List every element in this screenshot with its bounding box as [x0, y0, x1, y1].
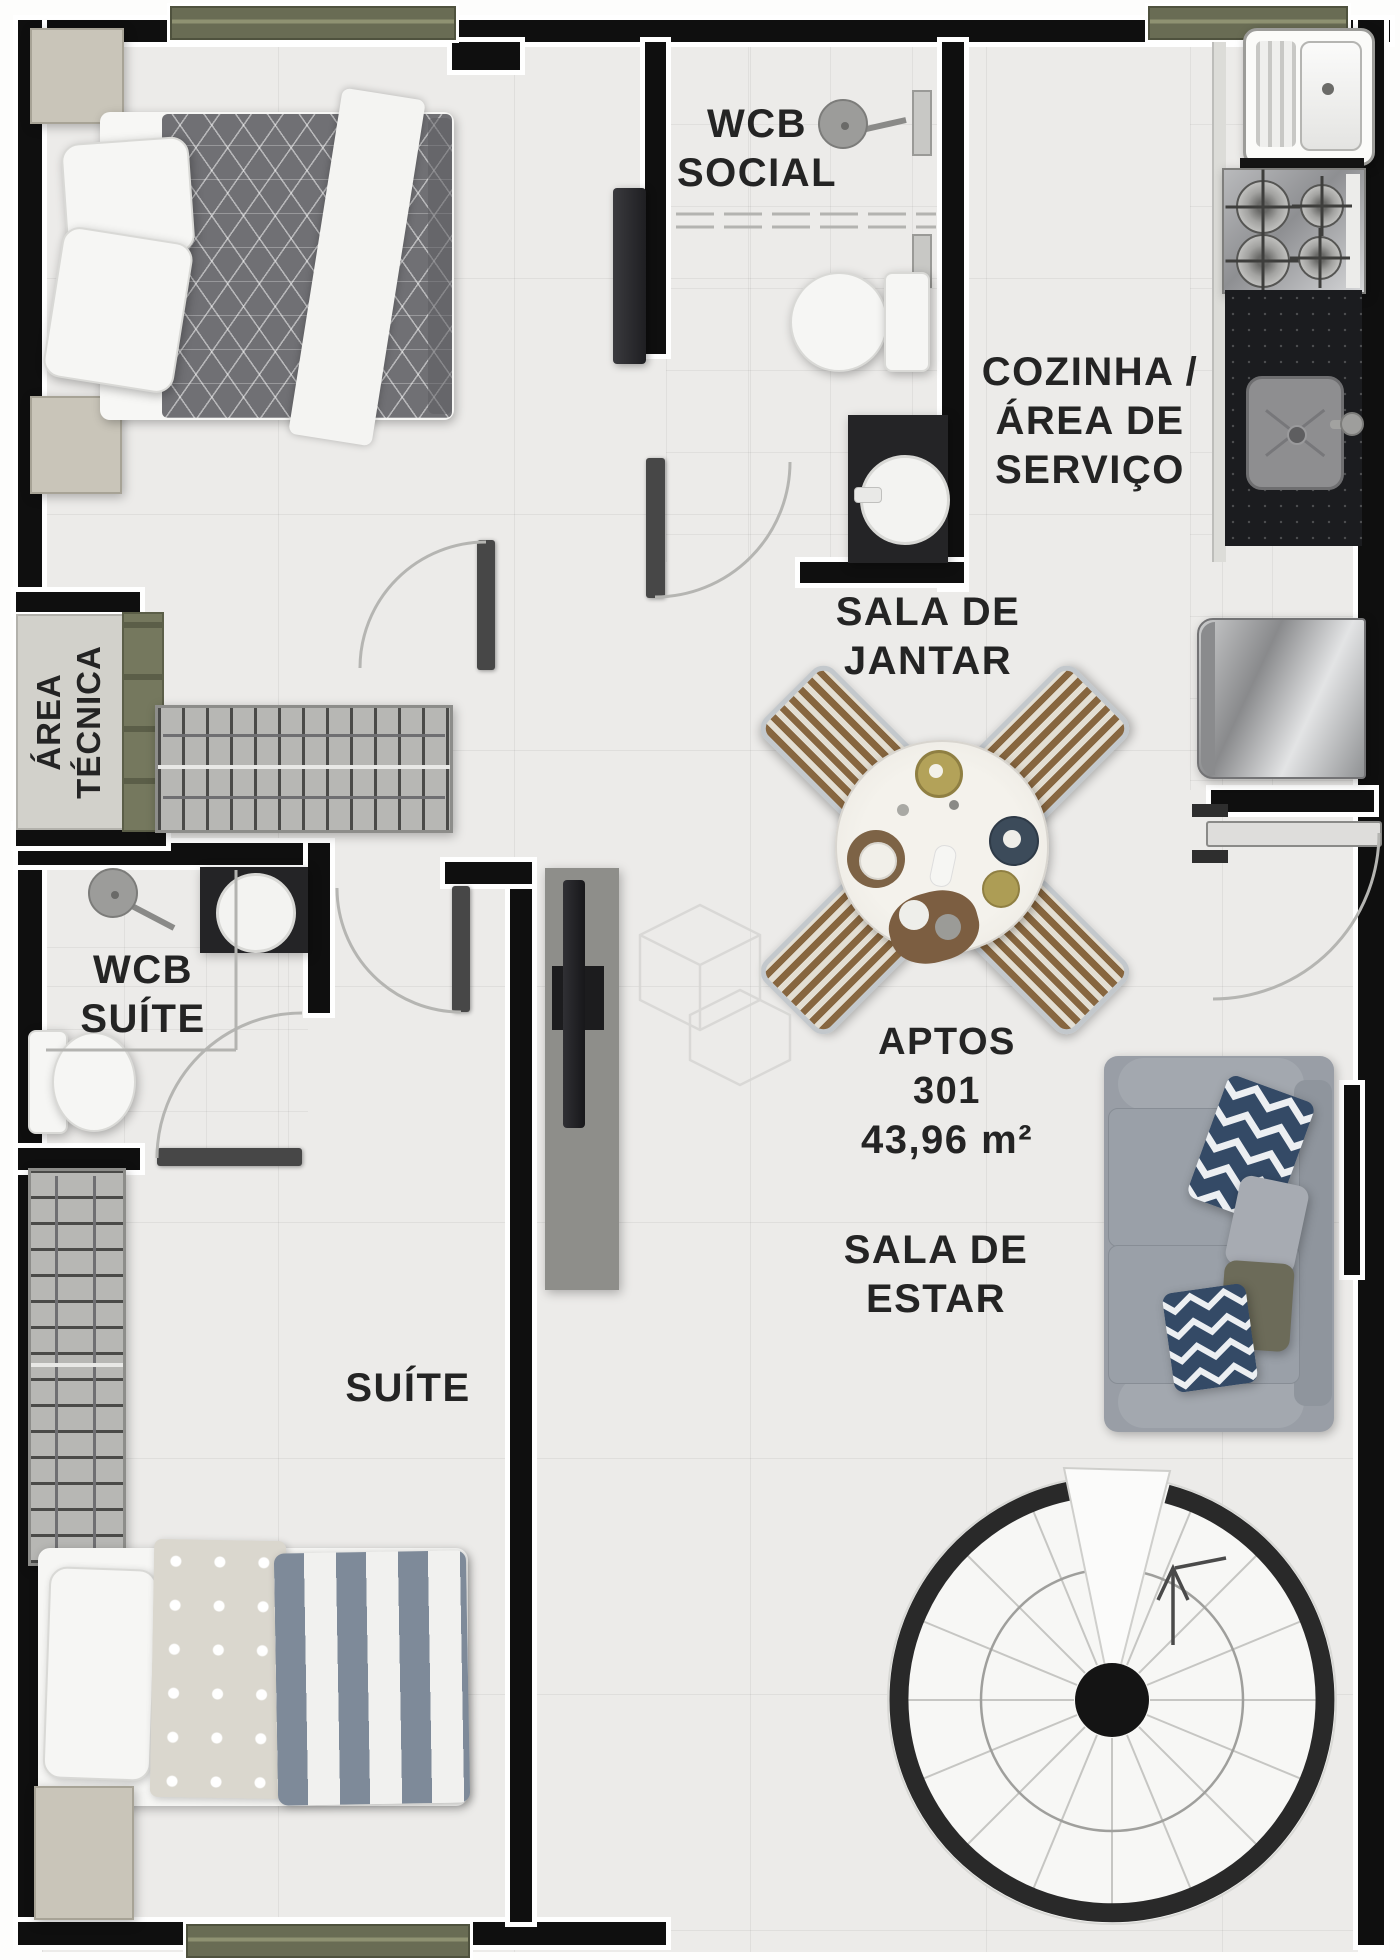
faucet-knob — [1340, 412, 1364, 436]
wardrobe-rail — [163, 734, 445, 737]
nightstand — [34, 1786, 134, 1920]
pillow — [41, 225, 195, 396]
room-label-sala-estar: SALA DE ESTAR — [844, 1226, 1029, 1324]
apartment-area: 43,96 m² — [861, 1115, 1033, 1166]
cup — [929, 764, 943, 778]
apartment-label: APTOS 301 43,96 m² — [861, 1018, 1033, 1166]
sink-basin — [216, 873, 296, 953]
wall-area-tecnica-top — [16, 592, 140, 612]
apartment-name: APTOS — [861, 1018, 1033, 1067]
wall-suite-top — [18, 843, 330, 865]
wall-notch-sofa — [1344, 1085, 1360, 1275]
striped-duvet — [274, 1550, 470, 1805]
cup — [949, 800, 959, 810]
double-bed-duvet-edge — [428, 118, 452, 414]
vase — [928, 843, 958, 889]
pillow — [42, 1566, 157, 1782]
cooktop-edge — [1346, 174, 1360, 288]
wall-wcb-social-bottom — [800, 562, 964, 583]
faucet — [854, 487, 882, 503]
toilet-bowl — [790, 272, 888, 372]
tv-bedroom — [613, 188, 646, 364]
wardrobe-rail — [163, 796, 445, 799]
cooktop — [1222, 168, 1366, 294]
door-leaf-suite — [452, 886, 470, 1012]
entry-door-hinge — [1192, 850, 1228, 863]
wardrobe — [28, 1168, 126, 1566]
kitchen-partition — [1212, 42, 1226, 562]
wall-divider-stub — [445, 862, 532, 884]
burner — [1236, 234, 1290, 288]
window-top-bedroom — [170, 6, 456, 40]
door-leaf-bedroom — [477, 540, 495, 670]
wardrobe-shelf — [158, 765, 450, 769]
room-label-cozinha: COZINHA / ÁREA DE SERVIÇO — [982, 348, 1198, 494]
window-bottom-suite — [186, 1924, 470, 1958]
door-leaf-wcb-social — [646, 458, 665, 598]
wall-wcb-suite-bottom — [18, 1148, 140, 1170]
door-leaf-wcb-suite — [157, 1148, 302, 1166]
kitchen-sink — [1246, 376, 1344, 490]
label-line: ÁREA — [29, 645, 69, 799]
label-line: WCB — [80, 946, 205, 995]
tv-living — [563, 880, 585, 1128]
label-line: ÁREA DE — [982, 397, 1198, 446]
towel-bar — [912, 90, 932, 156]
label-line: JANTAR — [836, 637, 1021, 686]
apartment-number: 301 — [861, 1067, 1033, 1116]
toilet-tank — [884, 272, 930, 372]
room-label-wcb-suite: WCB SUÍTE — [80, 946, 205, 1044]
toilet-bowl — [52, 1032, 136, 1132]
label-line: TÉCNICA — [69, 645, 109, 799]
room-label-sala-jantar: SALA DE JANTAR — [836, 588, 1021, 686]
label-line: SERVIÇO — [982, 446, 1198, 495]
cup — [897, 804, 909, 816]
sink-counter — [848, 415, 948, 563]
label-line: SUÍTE — [80, 995, 205, 1044]
wall-kitchen-stub — [1211, 790, 1374, 812]
label-line: SALA DE — [844, 1226, 1029, 1275]
entry-door-leaf — [1206, 821, 1382, 847]
label-line: WCB — [677, 100, 837, 149]
wall-central-divider — [510, 868, 532, 1922]
plate — [899, 900, 929, 930]
wall-stub-bedroom-top — [452, 42, 520, 70]
wall-wcb-suite-right — [308, 843, 330, 1013]
dining-table — [835, 740, 1049, 954]
label-line: SALA DE — [836, 588, 1021, 637]
label-line: SOCIAL — [677, 149, 837, 198]
wardrobe-rail — [93, 1176, 96, 1558]
laundry-tank — [1243, 28, 1375, 166]
burner — [1298, 236, 1342, 280]
kettle — [935, 914, 961, 940]
sink-counter — [200, 867, 308, 953]
label-line: ESTAR — [844, 1275, 1029, 1324]
egg — [1003, 830, 1021, 848]
room-label-area-tecnica: ÁREA TÉCNICA — [29, 645, 110, 799]
star-blanket — [150, 1539, 286, 1799]
fridge-handle — [1201, 622, 1215, 775]
label-line: COZINHA / — [982, 348, 1198, 397]
sofa-pillow-chevron — [1161, 1283, 1258, 1394]
plate-gold — [982, 870, 1020, 908]
wardrobe-rail — [55, 1176, 58, 1558]
wall-wcb-social-left — [645, 42, 666, 354]
room-label-wcb-social: WCB SOCIAL — [677, 100, 837, 198]
entry-door-hinge — [1192, 804, 1228, 817]
wardrobe-shelf — [31, 1363, 123, 1367]
floor-plan: WCB SOCIAL COZINHA / ÁREA DE SERVIÇO SAL… — [0, 0, 1400, 1960]
drain — [1322, 83, 1334, 95]
plate — [859, 842, 897, 880]
nightstand — [30, 28, 124, 124]
burner — [1300, 184, 1344, 228]
fridge — [1197, 618, 1366, 779]
laundry-tank-ribs — [1256, 41, 1296, 147]
room-label-suite: SUÍTE — [345, 1364, 470, 1413]
drain — [1287, 425, 1307, 445]
laundry-tank-basin — [1300, 41, 1362, 151]
label-line: SUÍTE — [345, 1364, 470, 1413]
wardrobe — [155, 705, 453, 833]
kitchen-counter-granite — [1225, 290, 1362, 546]
